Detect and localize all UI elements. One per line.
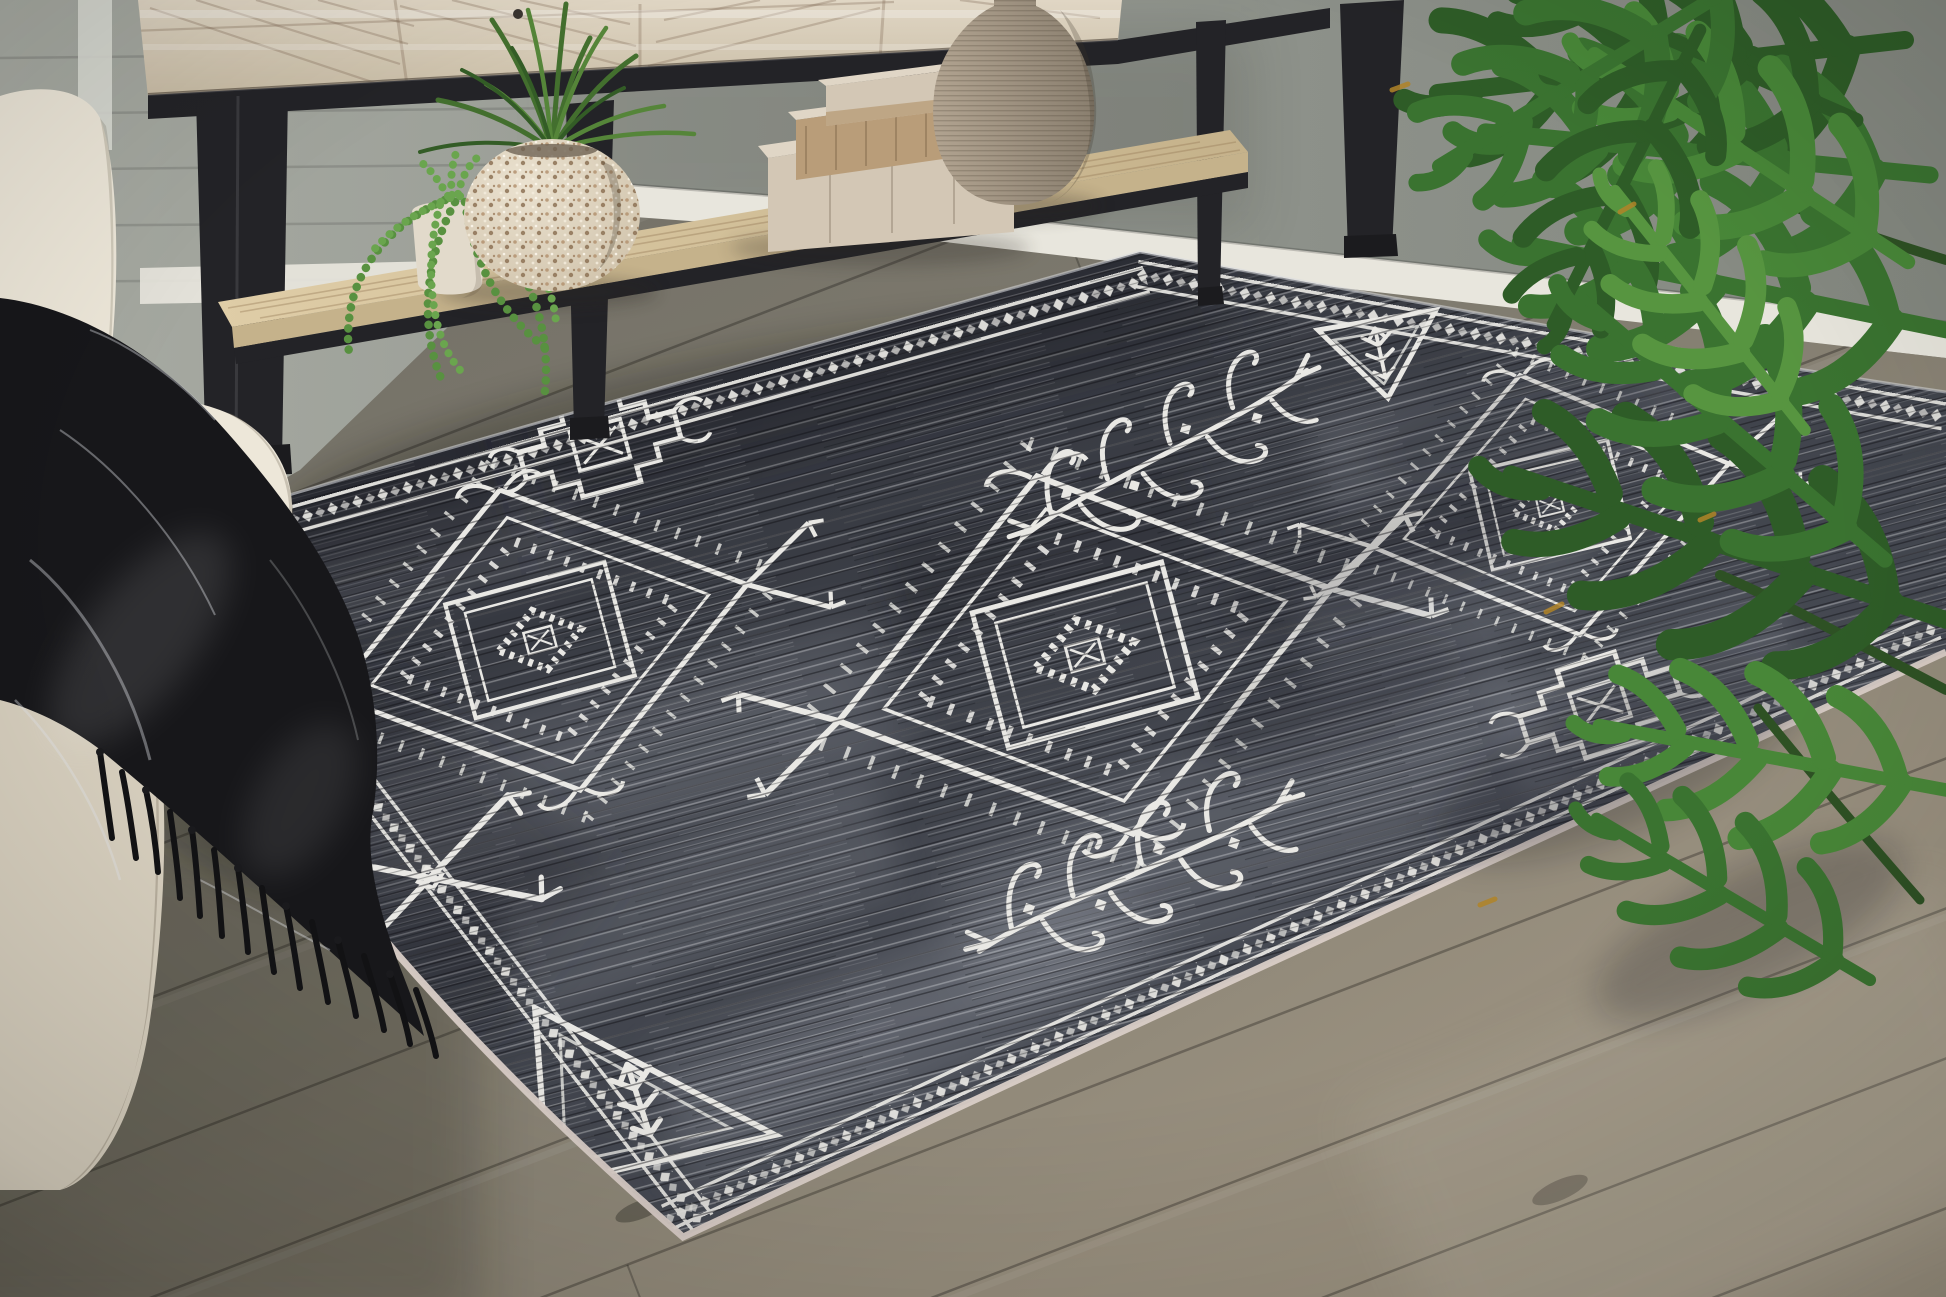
living-room-scene: living room corner with tribal area rug bbox=[0, 0, 1946, 1297]
vignette bbox=[0, 0, 1946, 1297]
